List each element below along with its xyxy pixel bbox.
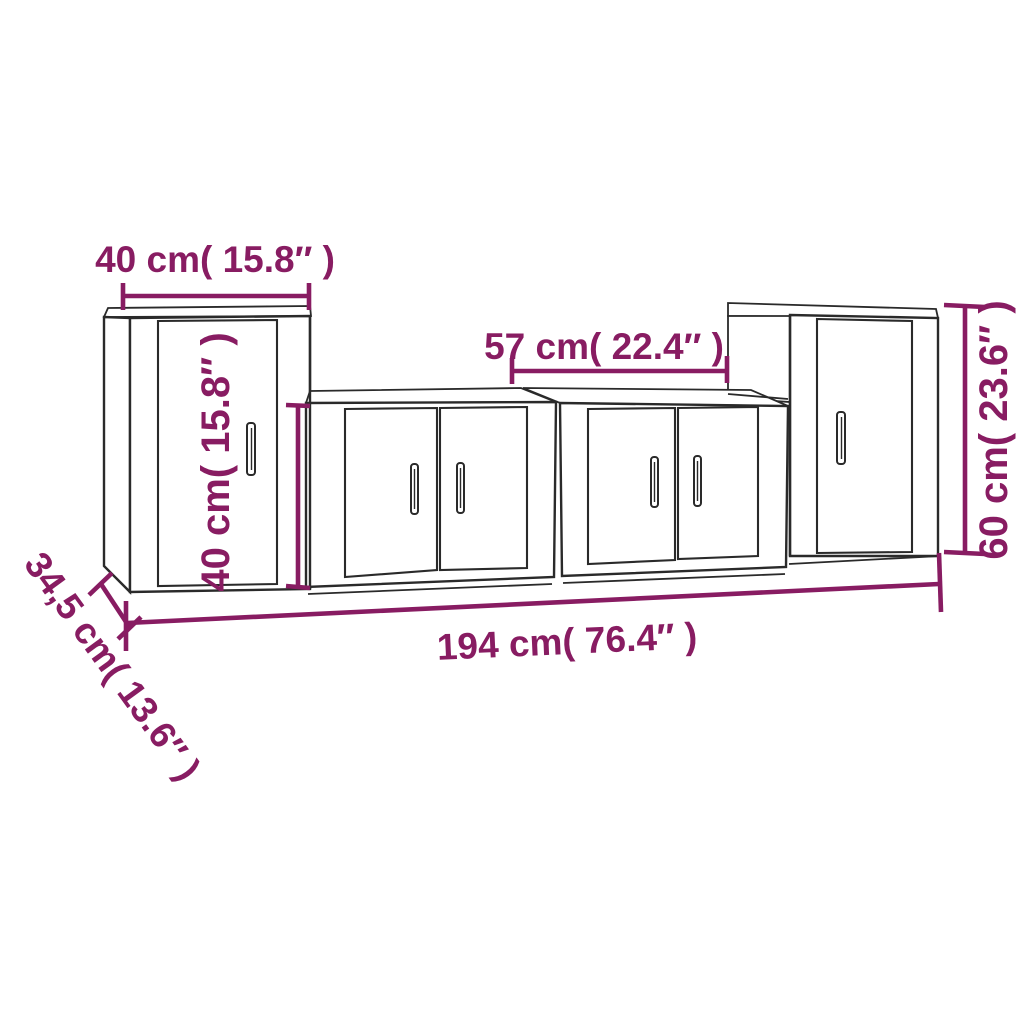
dim-tick-bottom <box>118 617 141 639</box>
middle-right-door-left <box>588 408 675 564</box>
dim-middle-cabinet-width-label: 57 cm( 22.4″ ) <box>484 326 724 367</box>
middle-right-door-right <box>678 407 758 559</box>
dim-right-cabinet-height: 60 cm( 23.6″ ) <box>944 300 1016 559</box>
dim-tick-right <box>939 553 941 612</box>
middle-left-door-left <box>345 408 437 577</box>
dimension-diagram: 40 cm( 15.8″ ) 57 cm( 22.4″ ) 40 cm( 15.… <box>0 0 1024 1024</box>
middle-left-cabinet <box>306 388 556 594</box>
dim-tick-top <box>286 405 310 406</box>
dim-left-cabinet-width: 40 cm( 15.8″ ) <box>95 239 335 310</box>
dim-tick-bottom <box>286 586 310 588</box>
diagram-canvas: 40 cm( 15.8″ ) 57 cm( 22.4″ ) 40 cm( 15.… <box>0 0 1024 1024</box>
dim-middle-cabinet-height-label: 40 cm( 15.8″ ) <box>194 332 238 591</box>
dim-left-cabinet-width-label: 40 cm( 15.8″ ) <box>95 239 335 280</box>
middle-right-cabinet <box>523 388 788 583</box>
dim-total-width-label: 194 cm( 76.4″ ) <box>436 615 698 668</box>
right-cabinet-door <box>817 319 912 553</box>
middle-left-top-face <box>306 388 556 403</box>
dim-right-cabinet-height-label: 60 cm( 23.6″ ) <box>972 300 1016 559</box>
dim-middle-cabinet-width: 57 cm( 22.4″ ) <box>484 326 727 384</box>
middle-left-door-right <box>440 407 527 570</box>
left-cabinet-side-face <box>104 317 130 592</box>
